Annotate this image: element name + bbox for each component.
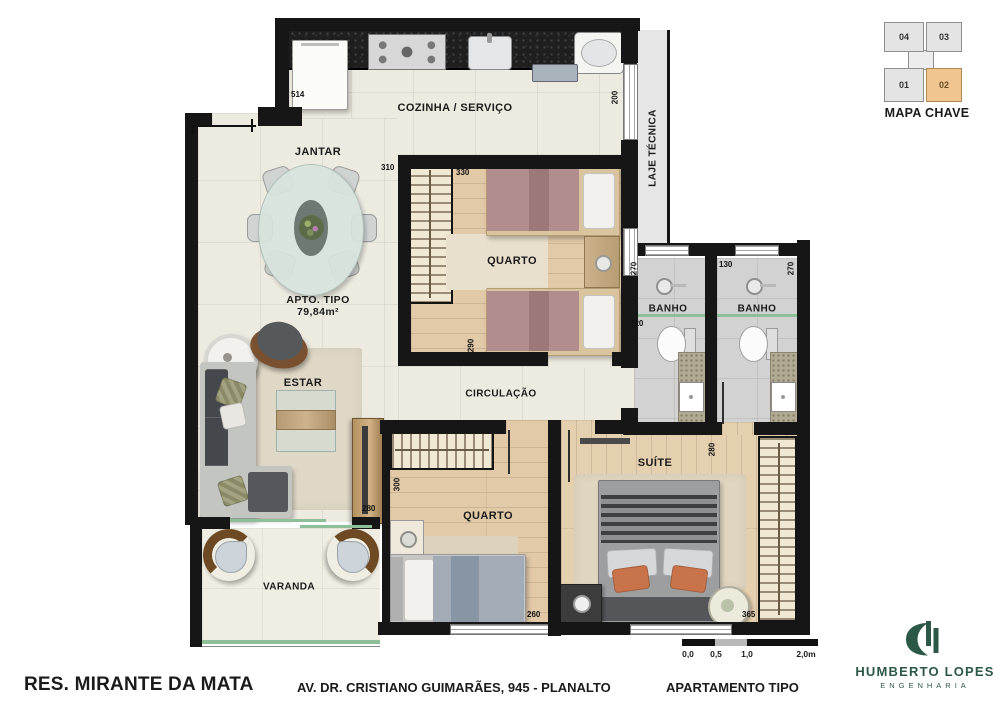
company-subtitle: ENGENHARIA xyxy=(850,681,1000,690)
wall xyxy=(190,525,202,647)
bed-headboard xyxy=(601,597,717,621)
faucet xyxy=(487,33,492,43)
nightstand xyxy=(560,584,602,624)
dim-label: 270 xyxy=(630,259,639,279)
single-bed xyxy=(486,288,620,356)
bed-headboard xyxy=(391,557,403,621)
room-label-suite: SUÍTE xyxy=(638,457,672,469)
door-leaf xyxy=(568,430,570,482)
door-leaf xyxy=(508,430,510,474)
scale-segment xyxy=(682,639,715,646)
wall xyxy=(275,18,640,31)
window xyxy=(450,624,550,635)
dimension-line xyxy=(192,125,256,127)
dim-label: 290 xyxy=(467,336,476,356)
room-label-bath2: BANHO xyxy=(738,304,777,315)
bed-pillow xyxy=(583,173,615,229)
humberto-lopes-logo-icon xyxy=(899,620,951,660)
room-label-balcony: VARANDA xyxy=(263,582,315,593)
shower-arm xyxy=(670,284,686,287)
floor-plan-sheet: COZINHA / SERVIÇO JANTAR APTO. TIPO 79,8… xyxy=(0,0,1000,707)
plan-name: APARTAMENTO TIPO xyxy=(666,680,799,695)
room-label-kitchen: COZINHA / SERVIÇO xyxy=(398,102,513,114)
key-map: 04 03 01 02 MAPA CHAVE xyxy=(872,12,982,120)
nightstand-lamp xyxy=(573,595,591,613)
dim-label: 514 xyxy=(291,90,304,99)
door-leaf xyxy=(722,382,724,424)
key-map-unit-04: 04 xyxy=(884,22,924,52)
suite-doorway xyxy=(561,420,595,434)
room-label-laje: LAJE TÉCNICA xyxy=(648,109,659,187)
room-label-bedroom1: QUARTO xyxy=(487,255,537,267)
blanket-band xyxy=(529,169,549,231)
project-title: RES. MIRANTE DA MATA xyxy=(24,674,254,696)
ventilation-louver xyxy=(623,64,638,140)
dim-label: 120 xyxy=(630,319,643,328)
scale-label: 0,5 xyxy=(710,649,722,659)
key-map-title: MAPA CHAVE xyxy=(872,106,982,120)
wicker-chair-cushion xyxy=(337,541,369,573)
wall xyxy=(398,155,638,169)
key-map-unit-02-highlighted: 02 xyxy=(926,68,962,102)
scale-label: 1,0 xyxy=(741,649,753,659)
wall xyxy=(667,30,670,244)
dim-label: 130 xyxy=(719,260,732,269)
dim-label: 310 xyxy=(381,163,394,172)
scale-segment xyxy=(747,639,818,646)
accent-pillow xyxy=(612,565,651,594)
sink-drain xyxy=(689,395,693,399)
fridge xyxy=(292,40,348,110)
wall xyxy=(595,420,623,434)
wicker-chair-cushion xyxy=(215,541,247,573)
sliding-door-glass xyxy=(230,519,326,522)
unit-number: 04 xyxy=(899,32,909,42)
scale-bar: 0,0 0,5 1,0 2,0m xyxy=(682,639,818,661)
room-label-living: ESTAR xyxy=(284,377,322,389)
dimension-tick xyxy=(251,119,253,132)
unit-area-text: 79,84m² xyxy=(286,306,349,318)
toilet-bowl xyxy=(739,326,768,362)
wall xyxy=(378,622,810,635)
dim-label: 270 xyxy=(787,259,796,279)
window xyxy=(735,245,779,256)
bed-pillow xyxy=(583,295,615,349)
room-label-bath1: BANHO xyxy=(649,304,688,315)
wall xyxy=(382,420,390,622)
nightstand xyxy=(584,236,620,288)
single-bed xyxy=(390,554,526,624)
bed-striped-blanket xyxy=(601,495,717,543)
wall xyxy=(185,113,198,525)
window xyxy=(645,245,689,256)
nightstand-lamp xyxy=(595,255,612,272)
blanket-band xyxy=(529,291,549,351)
scale-label: 2,0m xyxy=(796,649,815,659)
blanket-band xyxy=(451,556,479,622)
unit-number: 02 xyxy=(939,80,949,90)
wall xyxy=(754,422,810,435)
wall xyxy=(612,352,638,366)
dim-label: 602 xyxy=(189,117,198,137)
shower-arm xyxy=(760,284,776,287)
dish-rack xyxy=(532,64,578,82)
side-table-center xyxy=(721,599,734,612)
scale-label: 0,0 xyxy=(682,649,694,659)
tank-basin xyxy=(581,39,617,67)
suite-closet xyxy=(758,436,797,622)
kitchen-sink xyxy=(468,36,512,70)
wall xyxy=(398,155,411,366)
sofa-corner-cushion xyxy=(248,472,288,512)
balcony-railing-glass xyxy=(202,640,380,644)
wall xyxy=(623,422,722,435)
wall-tv xyxy=(580,438,630,444)
sink-drain xyxy=(781,395,785,399)
double-bed xyxy=(598,480,720,624)
fridge-handle xyxy=(301,43,339,46)
key-map-unit-01: 01 xyxy=(884,68,924,102)
project-address: AV. DR. CRISTIANO GUIMARÃES, 945 - PLANA… xyxy=(297,680,611,695)
room-label-hall: CIRCULAÇÃO xyxy=(465,389,536,400)
accent-pillow xyxy=(670,565,709,594)
dim-label: 280 xyxy=(362,504,375,513)
key-map-unit-03: 03 xyxy=(926,22,962,52)
wall xyxy=(380,420,506,434)
railing-line xyxy=(202,646,380,647)
room-label-dining: JANTAR xyxy=(295,146,341,158)
wardrobe xyxy=(390,428,494,470)
wall xyxy=(198,517,230,529)
laundry-tank xyxy=(574,32,624,74)
vanity-sink xyxy=(679,382,704,412)
bed-pillow xyxy=(404,559,435,621)
wall xyxy=(705,243,717,422)
dim-label: 365 xyxy=(742,610,755,619)
key-map-connector xyxy=(908,50,934,70)
dim-label: 200 xyxy=(611,88,620,108)
single-bed xyxy=(486,166,620,236)
unit-type-text: APTO. TIPO xyxy=(286,294,349,306)
unit-type-label: APTO. TIPO 79,84m² xyxy=(286,294,349,318)
company-logo: HUMBERTO LOPES ENGENHARIA xyxy=(850,620,1000,700)
coffee-table-wood xyxy=(276,410,336,430)
dim-label: 260 xyxy=(527,610,540,619)
tv-screen xyxy=(362,426,368,514)
wall xyxy=(275,18,289,118)
nightstand-lamp xyxy=(400,531,417,548)
lamp-center xyxy=(223,353,232,362)
dim-label: 330 xyxy=(456,168,469,177)
company-name: HUMBERTO LOPES xyxy=(850,664,1000,679)
window xyxy=(630,624,732,635)
wall xyxy=(797,240,810,635)
wall xyxy=(621,30,638,63)
dim-label: 280 xyxy=(708,440,717,460)
nightstand xyxy=(390,520,424,558)
cooktop xyxy=(368,34,446,70)
scale-segment xyxy=(715,639,747,646)
centerpiece-plant xyxy=(299,215,324,240)
bath2-doorway xyxy=(722,422,754,435)
room-label-bedroom2: QUARTO xyxy=(463,510,513,522)
bedroom2-doorway xyxy=(506,420,548,434)
vanity-sink xyxy=(771,382,796,412)
wall xyxy=(258,107,302,126)
unit-number: 03 xyxy=(939,32,949,42)
throw-pillow xyxy=(219,402,247,430)
sliding-door-glass xyxy=(300,525,372,528)
wall xyxy=(548,420,561,636)
unit-number: 01 xyxy=(899,80,909,90)
dim-label: 300 xyxy=(393,475,402,495)
